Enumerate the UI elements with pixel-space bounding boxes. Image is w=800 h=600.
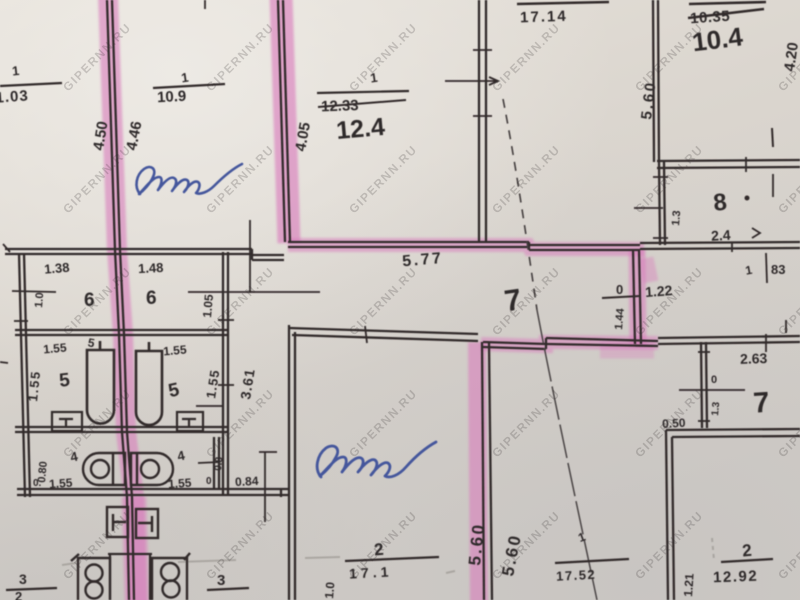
svg-text:0: 0 [206,476,212,487]
svg-text:1.55: 1.55 [168,476,193,492]
svg-text:0.: 0. [33,478,42,489]
svg-text:10.9: 10.9 [157,88,187,107]
svg-text:11.03: 11.03 [0,87,29,107]
svg-text:17.52: 17.52 [556,567,597,584]
svg-text:1.55: 1.55 [49,476,74,492]
svg-text:1.38: 1.38 [44,260,71,277]
svg-text:1.3: 1.3 [670,210,683,226]
svg-text:1.05: 1.05 [200,293,216,318]
svg-text:8: 8 [712,189,728,217]
svg-text:1.55: 1.55 [43,340,68,356]
svg-text:6: 6 [146,288,157,309]
svg-text:2: 2 [741,541,752,561]
svg-text:3: 3 [19,571,27,587]
svg-text:83: 83 [771,262,785,277]
svg-text:7: 7 [752,387,770,420]
svg-text:0: 0 [616,282,623,297]
svg-text:2.63: 2.63 [740,350,768,367]
svg-text:1.21: 1.21 [681,573,697,598]
svg-text:2: 2 [15,589,22,600]
svg-text:1.0: 1.0 [322,581,337,599]
svg-text:12.4: 12.4 [335,113,386,145]
svg-text:1.3: 1.3 [710,401,722,416]
svg-text:2.4: 2.4 [711,227,731,244]
svg-text:0.84: 0.84 [235,474,259,489]
svg-text:17.14: 17.14 [520,8,568,27]
svg-text:1.44: 1.44 [613,307,627,330]
svg-text:12.92: 12.92 [713,568,759,587]
svg-text:1.48: 1.48 [138,260,164,276]
svg-text:0: 0 [711,374,717,386]
svg-text:1.0: 1.0 [33,292,46,308]
svg-text:1.55: 1.55 [163,342,188,358]
